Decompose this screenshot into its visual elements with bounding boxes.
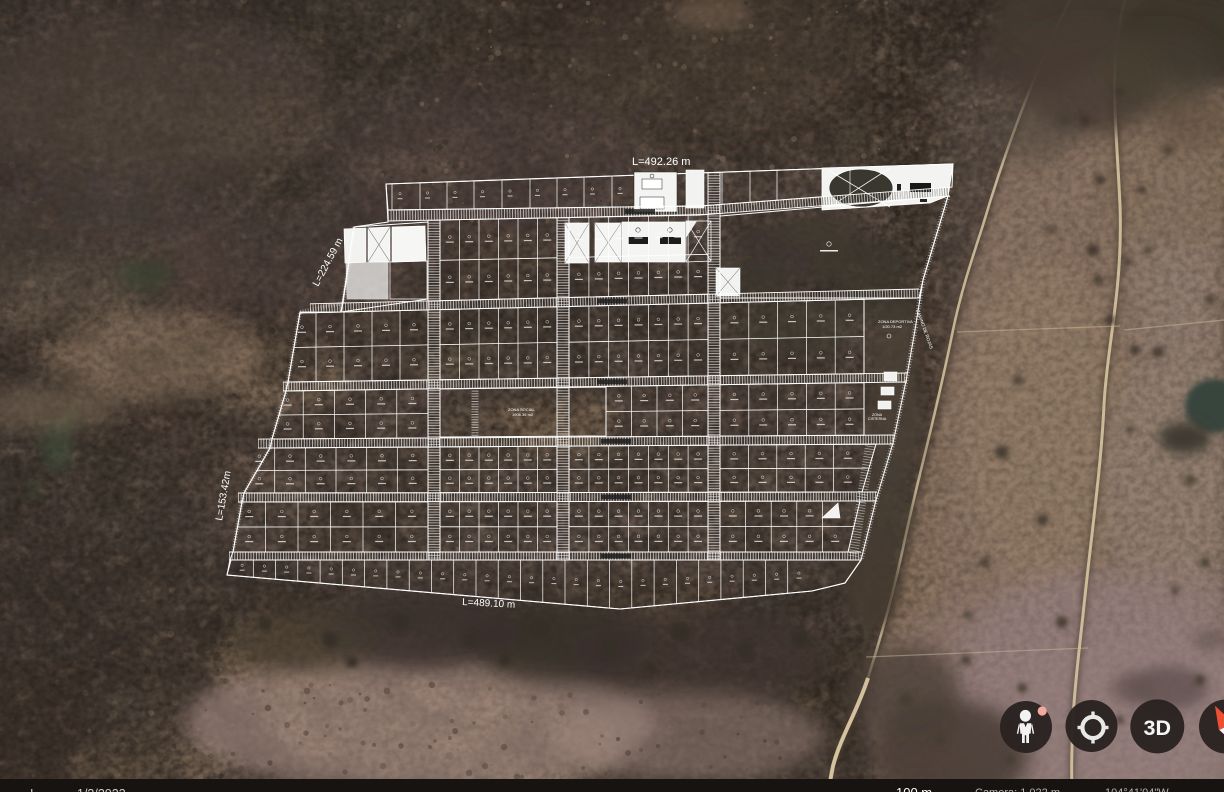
svg-text:3D: 3D	[1144, 716, 1171, 740]
svg-text:Camera: 1,022 m: Camera: 1,022 m	[975, 787, 1060, 792]
svg-text:L=492.26 m: L=492.26 m	[632, 156, 690, 168]
svg-text:I: I	[30, 787, 33, 792]
svg-text:1/3/2023: 1/3/2023	[77, 787, 126, 792]
svg-text:1906.36 m2: 1906.36 m2	[512, 412, 534, 417]
svg-text:CISTERNA: CISTERNA	[868, 417, 887, 421]
svg-text:100 m: 100 m	[896, 785, 932, 792]
svg-text:104°41'04"W: 104°41'04"W	[1105, 787, 1169, 792]
svg-text:1/20.73 m2: 1/20.73 m2	[882, 324, 903, 329]
